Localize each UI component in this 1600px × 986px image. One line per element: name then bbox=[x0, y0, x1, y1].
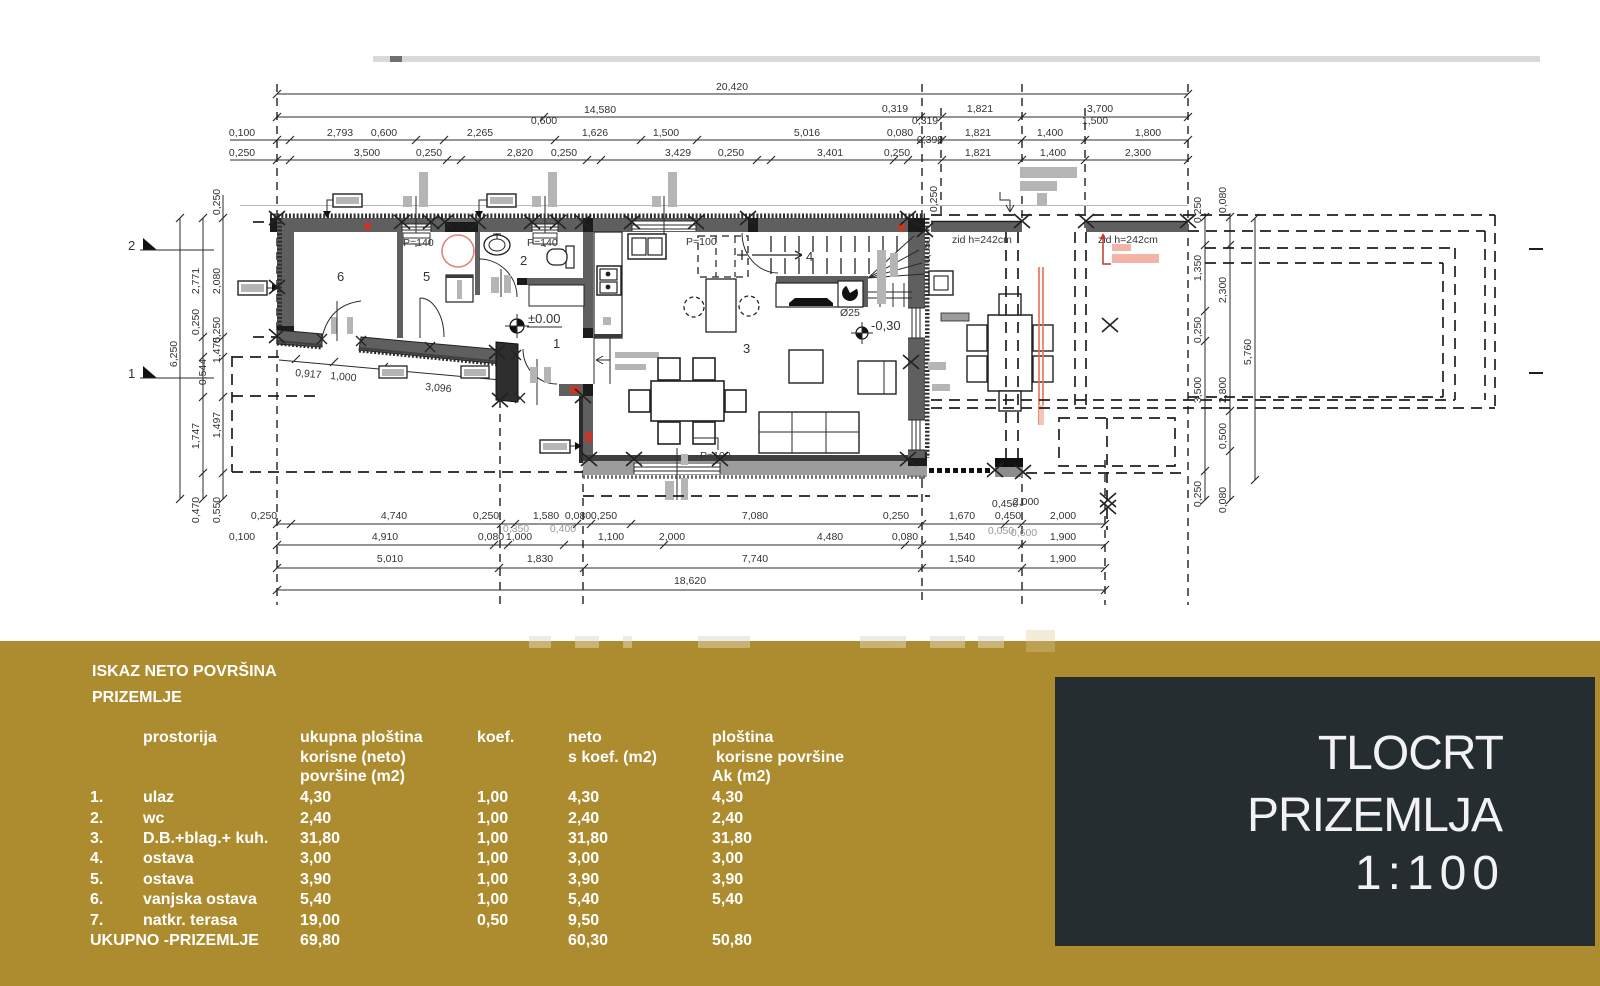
svg-text:50,80: 50,80 bbox=[712, 932, 752, 949]
svg-text:2,771: 2,771 bbox=[190, 268, 202, 294]
svg-text:ostava: ostava bbox=[143, 871, 194, 888]
svg-text:1,540: 1,540 bbox=[949, 553, 975, 565]
svg-text:3,096: 3,096 bbox=[425, 381, 452, 395]
svg-text:6.: 6. bbox=[90, 891, 103, 908]
svg-text:2,000: 2,000 bbox=[659, 531, 685, 543]
svg-text:2,40: 2,40 bbox=[568, 810, 599, 827]
svg-text:60,30: 60,30 bbox=[568, 932, 608, 949]
svg-text:31,80: 31,80 bbox=[568, 830, 608, 847]
svg-text:1,100: 1,100 bbox=[598, 531, 624, 543]
svg-text:19,00: 19,00 bbox=[300, 912, 340, 929]
svg-text:5,760: 5,760 bbox=[1242, 339, 1254, 365]
svg-text:vanjska ostava: vanjska ostava bbox=[143, 891, 257, 908]
svg-text:1,800: 1,800 bbox=[1135, 127, 1161, 139]
svg-text:4: 4 bbox=[806, 249, 813, 264]
svg-text:3,90: 3,90 bbox=[300, 871, 331, 888]
svg-text:1,626: 1,626 bbox=[582, 127, 608, 139]
svg-text:1,00: 1,00 bbox=[477, 789, 508, 806]
svg-text:1:100: 1:100 bbox=[1355, 847, 1505, 900]
svg-text:0,600: 0,600 bbox=[371, 127, 397, 139]
svg-text:0,080: 0,080 bbox=[478, 531, 504, 543]
svg-text:zid h=242cm: zid h=242cm bbox=[952, 234, 1012, 246]
svg-text:1.: 1. bbox=[90, 789, 103, 806]
svg-text:3,500: 3,500 bbox=[354, 147, 380, 159]
svg-text:9,50: 9,50 bbox=[568, 912, 599, 929]
svg-text:0,250: 0,250 bbox=[251, 510, 277, 522]
svg-text:1,500: 1,500 bbox=[1082, 115, 1108, 127]
svg-text:5: 5 bbox=[423, 269, 430, 284]
svg-text:5,010: 5,010 bbox=[377, 553, 403, 565]
svg-text:1,00: 1,00 bbox=[477, 830, 508, 847]
svg-text:korisne površine: korisne površine bbox=[716, 749, 844, 766]
svg-text:3: 3 bbox=[743, 341, 750, 356]
svg-text:1,821: 1,821 bbox=[965, 127, 991, 139]
svg-text:0,917: 0,917 bbox=[295, 367, 322, 381]
svg-text:ulaz: ulaz bbox=[143, 789, 174, 806]
svg-text:1,00: 1,00 bbox=[477, 891, 508, 908]
svg-text:7.: 7. bbox=[90, 912, 103, 929]
svg-text:2,300: 2,300 bbox=[1217, 277, 1229, 303]
svg-text:1,900: 1,900 bbox=[1050, 553, 1076, 565]
svg-text:0,250: 0,250 bbox=[883, 510, 909, 522]
svg-text:2,793: 2,793 bbox=[327, 127, 353, 139]
svg-text:1,670: 1,670 bbox=[949, 510, 975, 522]
svg-text:18,620: 18,620 bbox=[674, 575, 706, 587]
svg-text:7,080: 7,080 bbox=[742, 510, 768, 522]
svg-text:2: 2 bbox=[520, 253, 527, 268]
svg-text:0,544: 0,544 bbox=[197, 359, 209, 385]
svg-text:s koef. (m2): s koef. (m2) bbox=[568, 749, 657, 766]
svg-text:0,250: 0,250 bbox=[718, 147, 744, 159]
svg-text:2,265: 2,265 bbox=[467, 127, 493, 139]
svg-text:2,080: 2,080 bbox=[211, 268, 223, 294]
svg-text:0,50: 0,50 bbox=[477, 912, 508, 929]
svg-text:31,80: 31,80 bbox=[712, 830, 752, 847]
svg-text:3,00: 3,00 bbox=[712, 850, 743, 867]
svg-text:P=100: P=100 bbox=[686, 236, 717, 248]
svg-text:neto: neto bbox=[568, 729, 602, 746]
svg-text:3,700: 3,700 bbox=[1087, 103, 1113, 115]
svg-text:0,250: 0,250 bbox=[211, 189, 223, 215]
svg-text:3,00: 3,00 bbox=[300, 850, 331, 867]
svg-text:2,300: 2,300 bbox=[1125, 147, 1151, 159]
svg-text:prostorija: prostorija bbox=[143, 729, 217, 746]
svg-text:5,016: 5,016 bbox=[794, 127, 820, 139]
svg-text:1: 1 bbox=[553, 336, 560, 351]
svg-text:2,820: 2,820 bbox=[507, 147, 533, 159]
svg-text:ostava: ostava bbox=[143, 850, 194, 867]
svg-text:-0,30: -0,30 bbox=[871, 318, 901, 333]
svg-text:3,429: 3,429 bbox=[665, 147, 691, 159]
svg-text:0,500: 0,500 bbox=[1217, 423, 1229, 449]
svg-text:1,497: 1,497 bbox=[211, 412, 223, 438]
svg-text:2,000: 2,000 bbox=[1013, 496, 1039, 508]
svg-text:1,821: 1,821 bbox=[965, 147, 991, 159]
svg-text:2: 2 bbox=[128, 238, 135, 253]
svg-text:natkr. terasa: natkr. terasa bbox=[143, 912, 237, 929]
svg-text:PRIZEMLJA: PRIZEMLJA bbox=[1247, 789, 1503, 842]
svg-text:0,250: 0,250 bbox=[190, 309, 202, 335]
svg-text:PRIZEMLJE: PRIZEMLJE bbox=[92, 689, 182, 706]
svg-text:P=140: P=140 bbox=[403, 237, 434, 249]
svg-text:4,910: 4,910 bbox=[372, 531, 398, 543]
svg-text:0,080: 0,080 bbox=[892, 531, 918, 543]
svg-text:1,00: 1,00 bbox=[477, 850, 508, 867]
svg-text:1,00: 1,00 bbox=[477, 810, 508, 827]
svg-text:korisne (neto): korisne (neto) bbox=[300, 749, 406, 766]
svg-text:0,080: 0,080 bbox=[887, 127, 913, 139]
svg-text:1: 1 bbox=[128, 366, 135, 381]
svg-text:koef.: koef. bbox=[477, 729, 514, 746]
svg-text:1,580: 1,580 bbox=[533, 510, 559, 522]
svg-text:5,40: 5,40 bbox=[712, 891, 743, 908]
svg-text:1,747: 1,747 bbox=[190, 423, 202, 449]
svg-text:2,000: 2,000 bbox=[1050, 510, 1076, 522]
svg-text:2,40: 2,40 bbox=[712, 810, 743, 827]
svg-text:1,900: 1,900 bbox=[1050, 531, 1076, 543]
svg-text:2.: 2. bbox=[90, 810, 103, 827]
svg-text:0,080: 0,080 bbox=[1217, 187, 1229, 213]
svg-text:0,250: 0,250 bbox=[229, 147, 255, 159]
svg-text:ploština: ploština bbox=[712, 729, 773, 746]
svg-text:0,600: 0,600 bbox=[1011, 527, 1037, 539]
svg-text:4,740: 4,740 bbox=[381, 510, 407, 522]
svg-text:2,40: 2,40 bbox=[300, 810, 331, 827]
svg-text:7,740: 7,740 bbox=[742, 553, 768, 565]
svg-text:0,250: 0,250 bbox=[416, 147, 442, 159]
svg-text:3,401: 3,401 bbox=[817, 147, 843, 159]
svg-text:ISKAZ NETO POVRŠINA: ISKAZ NETO POVRŠINA bbox=[92, 661, 277, 680]
svg-text:4,480: 4,480 bbox=[817, 531, 843, 543]
svg-text:0,319: 0,319 bbox=[882, 103, 908, 115]
svg-text:20,420: 20,420 bbox=[716, 81, 748, 93]
svg-text:3,90: 3,90 bbox=[568, 871, 599, 888]
svg-text:3.: 3. bbox=[90, 830, 103, 847]
svg-text:5,40: 5,40 bbox=[300, 891, 331, 908]
svg-text:0,080: 0,080 bbox=[1217, 487, 1229, 513]
svg-text:4.: 4. bbox=[90, 850, 103, 867]
svg-text:P=140: P=140 bbox=[527, 237, 558, 249]
svg-text:Ø25: Ø25 bbox=[840, 307, 860, 319]
svg-text:1,350: 1,350 bbox=[1192, 255, 1204, 281]
svg-text:3,90: 3,90 bbox=[712, 871, 743, 888]
svg-text:Ak (m2): Ak (m2) bbox=[712, 768, 771, 785]
svg-text:6: 6 bbox=[337, 269, 344, 284]
svg-text:5,40: 5,40 bbox=[568, 891, 599, 908]
svg-text:0,250: 0,250 bbox=[551, 147, 577, 159]
svg-text:0,400: 0,400 bbox=[550, 523, 576, 535]
svg-text:1,830: 1,830 bbox=[527, 553, 553, 565]
svg-text:površine (m2): površine (m2) bbox=[300, 768, 405, 785]
svg-text:0,100: 0,100 bbox=[229, 531, 255, 543]
svg-text:1,00: 1,00 bbox=[477, 871, 508, 888]
svg-text:4,30: 4,30 bbox=[568, 789, 599, 806]
svg-text:0,350: 0,350 bbox=[503, 523, 529, 535]
svg-text:wc: wc bbox=[142, 810, 164, 827]
svg-text:5.: 5. bbox=[90, 871, 103, 888]
svg-text:UKUPNO -PRIZEMLJE: UKUPNO -PRIZEMLJE bbox=[90, 932, 259, 949]
svg-text:0,319: 0,319 bbox=[912, 115, 938, 127]
svg-text:1,540: 1,540 bbox=[949, 531, 975, 543]
svg-text:4,30: 4,30 bbox=[300, 789, 331, 806]
svg-text:31,80: 31,80 bbox=[300, 830, 340, 847]
svg-text:1,821: 1,821 bbox=[967, 103, 993, 115]
svg-text:1,400: 1,400 bbox=[1040, 147, 1066, 159]
svg-text:6,250: 6,250 bbox=[168, 341, 180, 367]
svg-text:0,470: 0,470 bbox=[190, 497, 202, 523]
svg-text:TLOCRT: TLOCRT bbox=[1318, 727, 1504, 780]
svg-text:3,00: 3,00 bbox=[568, 850, 599, 867]
svg-text:0,100: 0,100 bbox=[229, 127, 255, 139]
svg-text:4,30: 4,30 bbox=[712, 789, 743, 806]
svg-text:1,500: 1,500 bbox=[653, 127, 679, 139]
svg-text:0,250: 0,250 bbox=[928, 186, 940, 212]
svg-text:0,250: 0,250 bbox=[1192, 317, 1204, 343]
svg-text:ukupna ploština: ukupna ploština bbox=[300, 729, 423, 746]
svg-text:1,400: 1,400 bbox=[1037, 127, 1063, 139]
svg-text:1,000: 1,000 bbox=[330, 370, 357, 384]
svg-text:14,580: 14,580 bbox=[584, 104, 616, 116]
svg-text:±0.00: ±0.00 bbox=[528, 311, 560, 326]
svg-text:0,080: 0,080 bbox=[565, 510, 591, 522]
svg-text:69,80: 69,80 bbox=[300, 932, 340, 949]
svg-text:D.B.+blag.+ kuh.: D.B.+blag.+ kuh. bbox=[143, 830, 268, 847]
svg-text:0,250: 0,250 bbox=[473, 510, 499, 522]
